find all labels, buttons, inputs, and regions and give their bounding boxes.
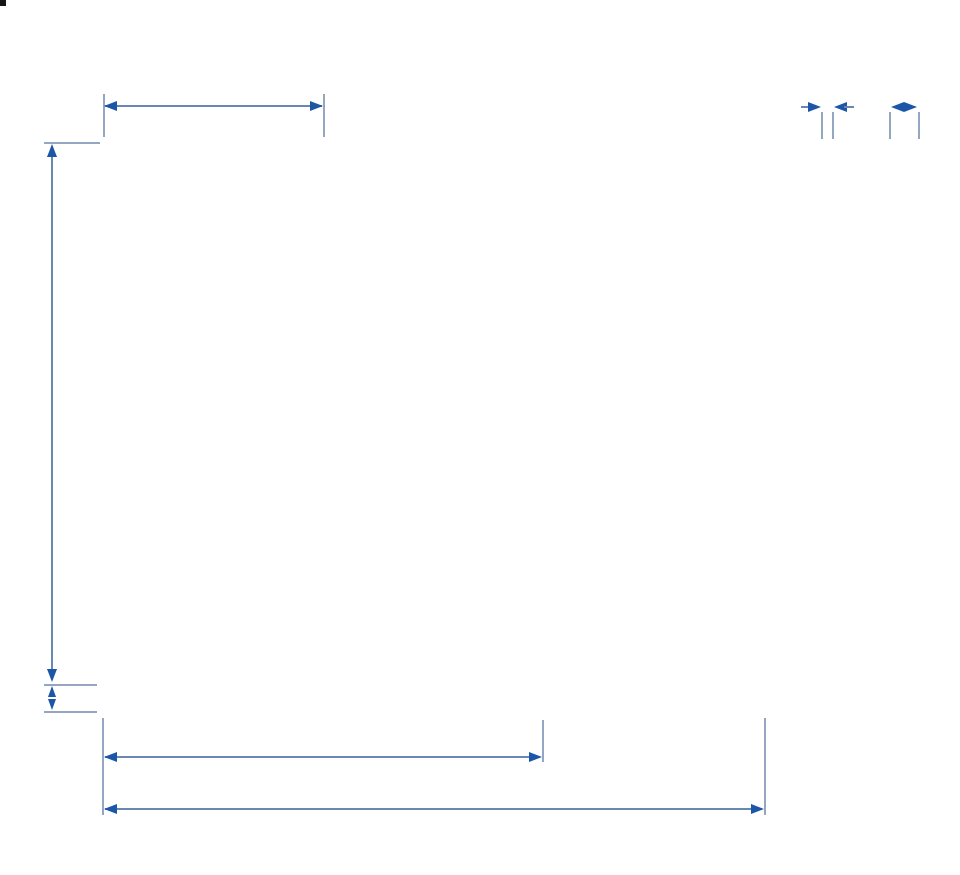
arrowhead-left-icon bbox=[104, 752, 117, 762]
arrowhead-right-icon bbox=[751, 804, 764, 814]
extension-line bbox=[821, 112, 823, 139]
arrowhead-down-icon bbox=[47, 669, 57, 682]
extension-line bbox=[918, 112, 920, 139]
extension-line bbox=[44, 711, 97, 713]
extension-line bbox=[832, 112, 834, 139]
dimension-line-144cm bbox=[105, 756, 540, 758]
dimension-diagram bbox=[0, 0, 960, 875]
extension-line bbox=[542, 720, 544, 762]
dimension-line-176cm bbox=[51, 150, 53, 677]
arrowhead-left-icon bbox=[104, 804, 117, 814]
arrowhead-left-icon bbox=[104, 101, 117, 111]
dimension-line-216cm bbox=[105, 808, 762, 810]
dimension-line-72cm bbox=[105, 105, 322, 107]
arrowhead-down-icon bbox=[48, 699, 56, 710]
arrowhead-right-icon bbox=[904, 102, 917, 112]
side-view-deep-panel bbox=[0, 0, 6, 6]
extension-line bbox=[764, 718, 766, 815]
arrowhead-right-icon bbox=[310, 101, 323, 111]
arrowhead-right-icon bbox=[808, 102, 821, 112]
arrowhead-up-icon bbox=[48, 686, 56, 697]
arrowhead-left-icon bbox=[891, 102, 904, 112]
extension-line bbox=[323, 94, 325, 137]
extension-line bbox=[889, 112, 891, 139]
arrowhead-up-icon bbox=[47, 144, 57, 157]
arrowhead-right-icon bbox=[529, 752, 542, 762]
dimension-line-3cm bbox=[844, 106, 854, 108]
extension-line bbox=[102, 718, 104, 815]
